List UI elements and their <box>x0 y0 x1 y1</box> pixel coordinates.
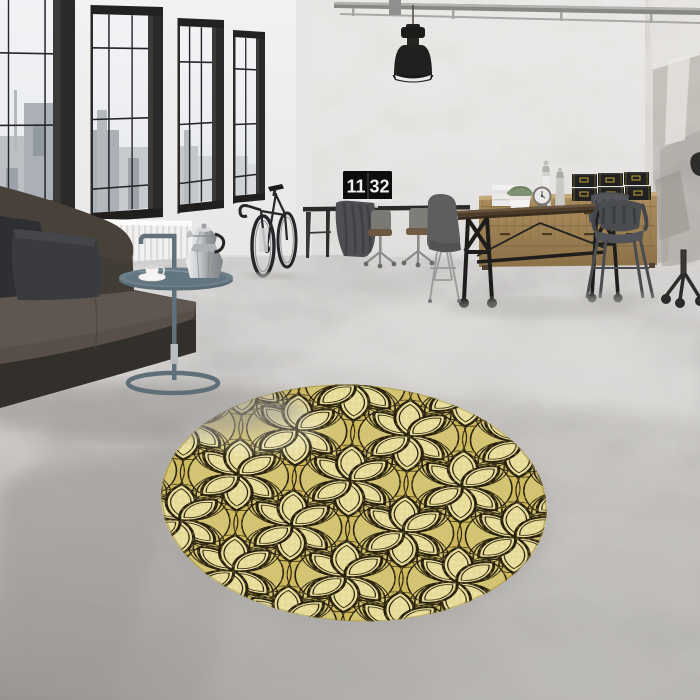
svg-text:11: 11 <box>346 177 365 197</box>
svg-text:32: 32 <box>369 177 389 197</box>
